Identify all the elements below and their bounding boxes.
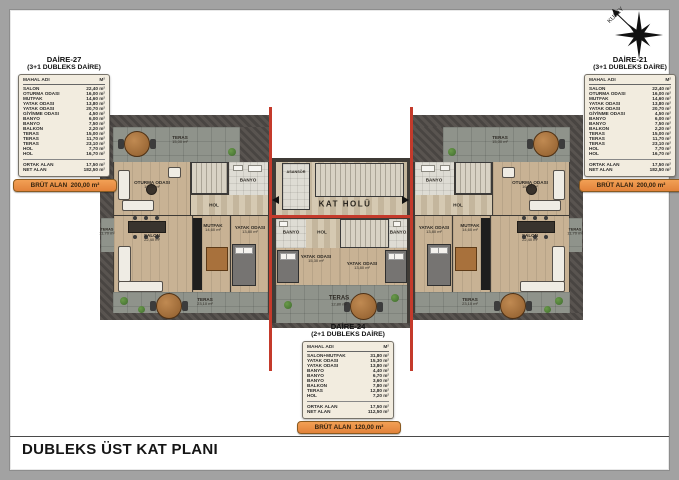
room-label-asansor: ASANSÖR (287, 170, 306, 174)
info-card-daire-27: DAİRE-27 (3+1 DUBLEKS DAİRE) MAHAL ADI M… (18, 55, 110, 192)
room-label-banyo-mid-right: BANYO (390, 229, 407, 234)
entry-door-arrow-left (272, 196, 279, 204)
roof-band-right-top (412, 115, 583, 127)
plant (555, 297, 563, 305)
room-label-kat-holu: KAT HOLÜ (319, 199, 372, 208)
bath-sink (279, 221, 288, 227)
plant (544, 306, 551, 313)
sofa (553, 170, 565, 200)
apartment-name: DAİRE-27 (18, 55, 110, 64)
roof-band-left-top (100, 115, 271, 127)
stairs-mid-apartment (340, 219, 389, 248)
kitchen-counter-right (481, 218, 490, 290)
bath-sink (233, 165, 243, 171)
plant (120, 297, 128, 305)
bath-sink (393, 221, 401, 227)
brut-alan-banner: BRÜT ALAN 200,00 m² (13, 179, 117, 192)
dining-chairs (522, 216, 526, 220)
stairs-right-apartment (455, 162, 492, 194)
sofa (118, 281, 163, 292)
table-header: MAHAL ADI M² (23, 78, 105, 85)
room-label-yatak-left: YATAK ODASI13,80 m² (235, 225, 266, 235)
kitchen-table-right (455, 247, 477, 271)
apartment-type: (3+1 DUBLEKS DAİRE) (584, 64, 676, 71)
room-label-teras-bottom-left: TERAS23,10 m² (197, 297, 213, 307)
sofa (118, 170, 130, 200)
room-label-teras-mid: TERAS12,80 m² (329, 295, 349, 306)
dining-table-right (517, 221, 555, 233)
room-label-teras-side-right: TERAS11,70 m² (567, 228, 583, 237)
room-label-hol-mid: HOL (317, 229, 327, 234)
room-label-teras-side-left: TERAS11,70 m² (99, 228, 115, 237)
plant (448, 148, 456, 156)
apartment-type: (2+1 DUBLEKS DAİRE) (302, 331, 394, 338)
table-row: HOL16,70 m² (23, 151, 105, 156)
section-line-right (410, 107, 413, 371)
room-label-yatak-mid-right: YATAK ODASI13,80 m² (347, 261, 378, 271)
apartment-name: DAİRE-24 (302, 322, 394, 331)
room-label-hol-left: HOL (209, 202, 219, 207)
stairs-left-apartment (191, 162, 228, 194)
dining-table-left (128, 221, 166, 233)
table-rows: SALON+MUTFAK31,80 m²YATAK ODASI15,30 m²Y… (307, 353, 389, 398)
round-table-teras-top-left (124, 131, 150, 157)
round-table-teras-bottom-right (500, 293, 526, 319)
table-summary: ORTAK ALAN17,50 m²NET ALAN112,50 m² (307, 401, 389, 414)
room-label-oturma-right: OTURMA ODASI16,00 m² (512, 180, 548, 190)
room-label-salon-left: SALON22,40 m² (144, 233, 160, 243)
round-table-teras-bottom-left (156, 293, 182, 319)
plant (138, 306, 145, 313)
dining-chairs (133, 216, 137, 220)
room-label-teras-top-left: TERAS15,00 m² (172, 135, 188, 145)
sofa (529, 200, 561, 211)
round-table-teras-mid (350, 293, 377, 320)
roof-band-left-bottom (100, 313, 271, 320)
kitchen-table-left (206, 247, 228, 271)
table-header: MAHAL ADI M² (589, 78, 671, 85)
roof-band-right-inner (412, 127, 443, 162)
table-row: NET ALAN112,50 m² (307, 409, 389, 414)
table-header: MAHAL ADI M² (307, 345, 389, 352)
kitchen-counter-left (193, 218, 202, 290)
info-card-daire-21: DAİRE-21 (3+1 DUBLEKS DAİRE) MAHAL ADI M… (584, 55, 676, 192)
bath-sink (440, 165, 450, 171)
section-line-horizontal (269, 215, 413, 218)
area-table: MAHAL ADI M² SALON22,40 m²OTURMA ODASI16… (584, 74, 676, 177)
room-label-teras-top-right: TERAS15,00 m² (492, 135, 508, 145)
roof-band-right-bottom (412, 313, 583, 320)
area-table: MAHAL ADI M² SALON+MUTFAK31,80 m²YATAK O… (302, 341, 394, 419)
room-label-mutfak-left: MUTFAK14,60 m² (203, 223, 222, 233)
plant (284, 301, 292, 309)
info-card-daire-24: DAİRE-24 (2+1 DUBLEKS DAİRE) MAHAL ADI M… (302, 322, 394, 434)
compass-north-label: KUZEY (607, 6, 625, 24)
armchair (502, 167, 515, 178)
bed-mid-left (277, 250, 299, 283)
room-label-banyo-left: BANYO (240, 177, 257, 182)
bed-left (232, 244, 256, 286)
brut-alan-banner: BRÜT ALAN 200,00 m² (579, 179, 679, 192)
page-title: DUBLEKS ÜST KAT PLANI (22, 441, 218, 458)
table-row: HOL16,70 m² (589, 151, 671, 156)
sofa (552, 246, 565, 282)
table-row: NET ALAN182,50 m² (589, 167, 671, 172)
plant (391, 294, 399, 302)
room-label-yatak-mid-left: YATAK ODASI15,30 m² (301, 254, 332, 264)
bath-tub (421, 165, 435, 172)
apartment-type: (3+1 DUBLEKS DAİRE) (18, 64, 110, 71)
round-table-teras-top-right (533, 131, 559, 157)
table-summary: ORTAK ALAN17,50 m²NET ALAN182,50 m² (23, 159, 105, 172)
table-row: HOL7,20 m² (307, 393, 389, 398)
table-row: NET ALAN182,50 m² (23, 167, 105, 172)
plant (228, 148, 236, 156)
area-table: MAHAL ADI M² SALON22,40 m²OTURMA ODASI16… (18, 74, 110, 177)
table-rows: SALON22,40 m²OTURMA ODASI16,00 m²MUTFAK1… (589, 86, 671, 156)
room-teras-bottom-left (113, 292, 268, 313)
bed-mid-right (385, 250, 407, 283)
room-label-yatak-right: YATAK ODASI13,80 m² (419, 225, 450, 235)
table-summary: ORTAK ALAN17,50 m²NET ALAN182,50 m² (589, 159, 671, 172)
roof-band-left-inner (240, 127, 271, 162)
armchair (168, 167, 181, 178)
sofa (520, 281, 565, 292)
room-label-banyo-right: BANYO (426, 177, 443, 182)
sofa (122, 200, 154, 211)
room-label-banyo-mid-left: BANYO (283, 229, 300, 234)
bed-right (427, 244, 451, 286)
title-divider (10, 436, 669, 437)
room-label-teras-bottom-right: TERAS23,10 m² (462, 297, 478, 307)
room-label-mutfak-right: MUTFAK14,60 m² (460, 223, 479, 233)
section-line-left (269, 107, 272, 371)
room-label-oturma-left: OTURMA ODASI16,00 m² (134, 180, 170, 190)
stairs-center-core (315, 163, 404, 197)
entry-door-arrow-right (402, 196, 409, 204)
bath-tub (248, 165, 262, 172)
floor-plan-sheet: KUZEY (0, 0, 679, 480)
brut-alan-banner: BRÜT ALAN 120,00 m² (297, 421, 401, 434)
sofa (118, 246, 131, 282)
room-label-salon-right: SALON22,40 m² (522, 233, 538, 243)
table-rows: SALON22,40 m²OTURMA ODASI16,00 m²MUTFAK1… (23, 86, 105, 156)
apartment-name: DAİRE-21 (584, 55, 676, 64)
room-hol-left (191, 195, 268, 215)
room-label-hol-right: HOL (453, 202, 463, 207)
